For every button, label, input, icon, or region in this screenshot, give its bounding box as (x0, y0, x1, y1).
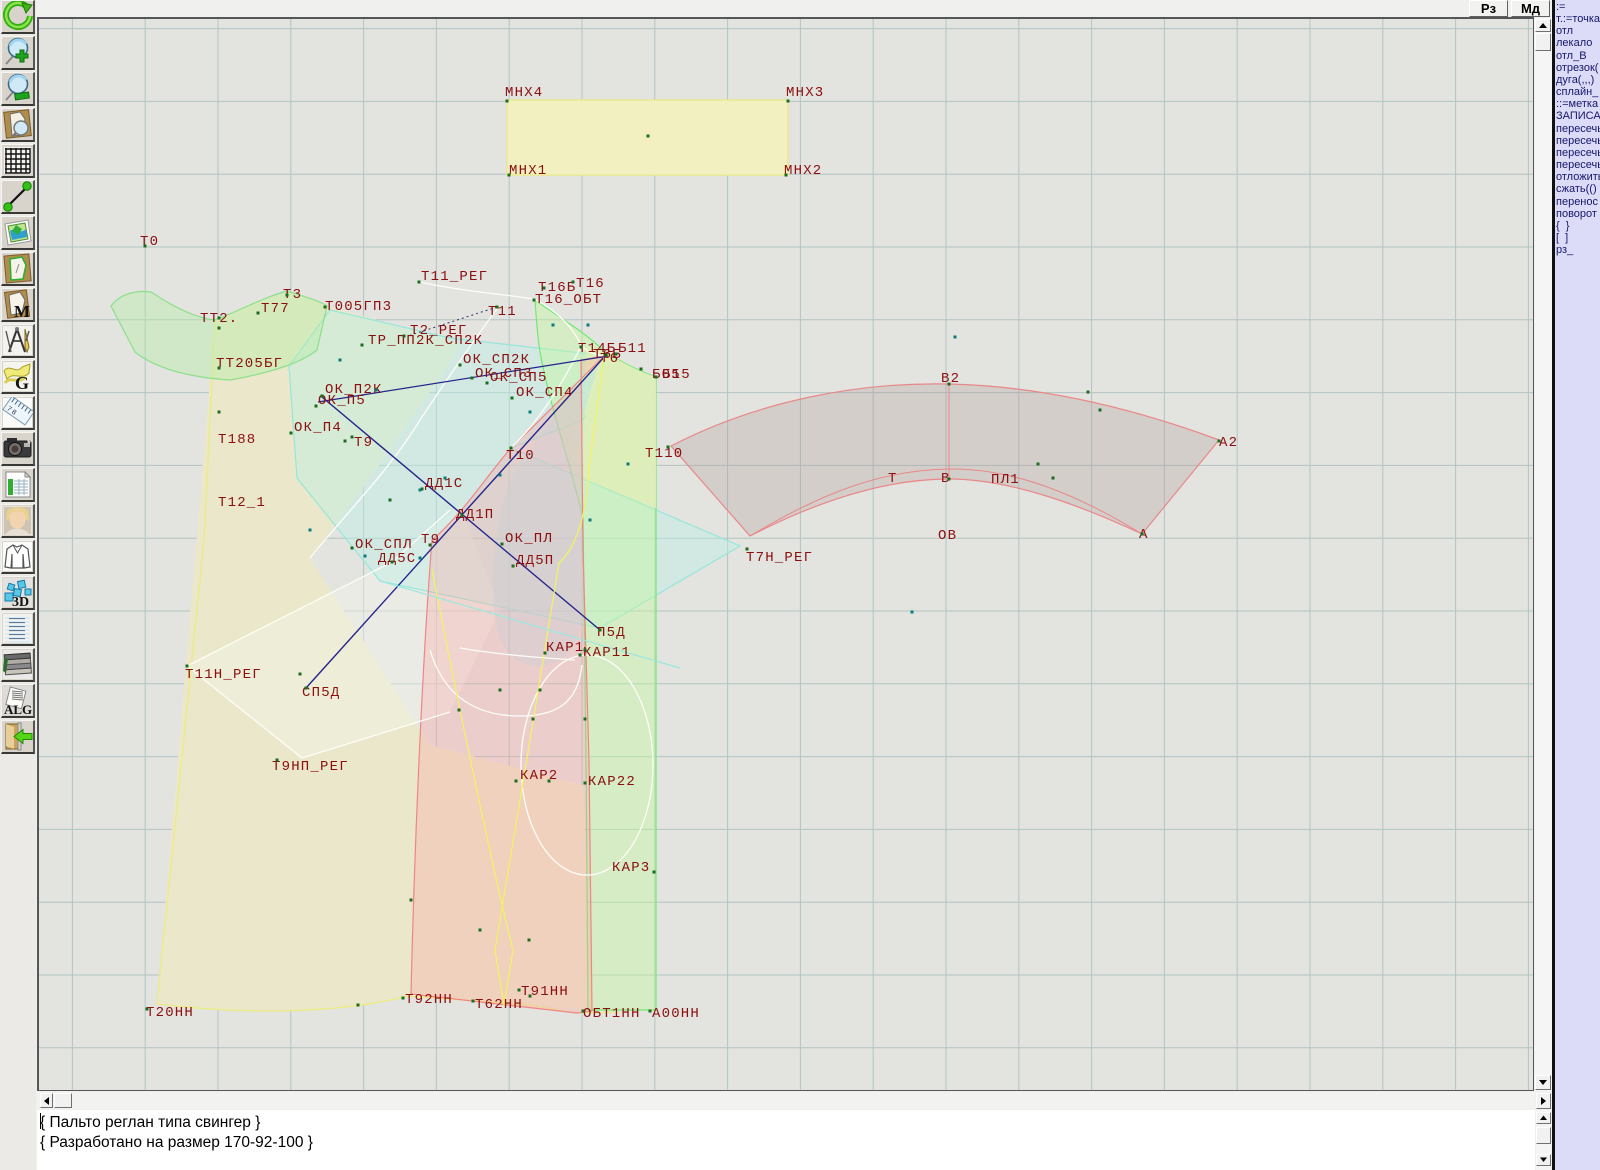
svg-text:Т9НП_РЕГ: Т9НП_РЕГ (272, 759, 349, 775)
svg-text:Т16_ОБТ: Т16_ОБТ (535, 292, 602, 308)
svg-text:ОК_П4: ОК_П4 (294, 420, 342, 436)
svg-text:Т110: Т110 (645, 446, 683, 462)
svg-text:Б11: Б11 (618, 341, 647, 357)
svg-text:Т7Н_РЕГ: Т7Н_РЕГ (746, 550, 813, 566)
svg-text:СП5Д: СП5Д (302, 685, 340, 701)
svg-text:G: G (15, 373, 29, 392)
svg-text:МНХ4: МНХ4 (505, 85, 543, 101)
svg-text:Т9: Т9 (354, 435, 373, 451)
svg-text:Т20НН: Т20НН (146, 1005, 194, 1021)
svg-text:ТР_ПП2К_СП2К: ТР_ПП2К_СП2К (368, 333, 483, 349)
svg-text:Т92НН: Т92НН (405, 992, 453, 1008)
svg-text:Т005ГП3: Т005ГП3 (325, 299, 392, 315)
svg-text:МНХ2: МНХ2 (784, 163, 822, 179)
svg-text:А2: А2 (1219, 435, 1238, 451)
svg-text:ПЛ1: ПЛ1 (991, 472, 1020, 488)
svg-text:Б15: Б15 (662, 367, 691, 383)
svg-text:Т11Н_РЕГ: Т11Н_РЕГ (185, 667, 262, 683)
svg-text:Т: Т (888, 471, 898, 487)
svg-text:ТТ205БГ: ТТ205БГ (216, 356, 283, 372)
svg-text:ОК_П5: ОК_П5 (318, 393, 366, 409)
svg-text:ОК_СП4: ОК_СП4 (516, 385, 574, 401)
svg-text:Т91НН: Т91НН (521, 984, 569, 1000)
svg-text:КАР2: КАР2 (520, 768, 558, 784)
svg-text:ОК_ПЛ: ОК_ПЛ (505, 531, 553, 547)
svg-text:Т11_РЕГ: Т11_РЕГ (421, 269, 488, 285)
svg-text:Т0: Т0 (140, 234, 159, 250)
svg-text:Т10: Т10 (506, 448, 535, 464)
svg-text:Т16: Т16 (576, 276, 605, 292)
svg-text:МНХ3: МНХ3 (786, 85, 824, 101)
svg-text:M: M (14, 302, 30, 320)
svg-text:3D: 3D (12, 595, 29, 608)
svg-text:Т188: Т188 (218, 432, 256, 448)
svg-text:Т77: Т77 (261, 301, 290, 317)
svg-text:ALG: ALG (4, 702, 32, 716)
svg-text:А00НН: А00НН (652, 1006, 700, 1022)
svg-text:КАР22: КАР22 (588, 774, 636, 790)
svg-text:ОВ: ОВ (938, 528, 957, 544)
svg-text:ОБТ1НН: ОБТ1НН (583, 1006, 641, 1022)
svg-text:ОК_СП5: ОК_СП5 (490, 370, 548, 386)
svg-text:ДД5П: ДД5П (516, 553, 554, 569)
svg-text:ДД5С: ДД5С (378, 551, 416, 567)
svg-text:Т11: Т11 (488, 304, 517, 320)
svg-text:МНХ1: МНХ1 (509, 163, 547, 179)
svg-text:В2: В2 (941, 371, 960, 387)
svg-text:КАР3: КАР3 (612, 860, 650, 876)
svg-text:Т12_1: Т12_1 (218, 495, 266, 511)
svg-text:Т62НН: Т62НН (475, 997, 523, 1013)
svg-text:А: А (1139, 527, 1149, 543)
svg-text:П5Д: П5Д (597, 625, 626, 641)
svg-text:КАР11: КАР11 (583, 645, 631, 661)
